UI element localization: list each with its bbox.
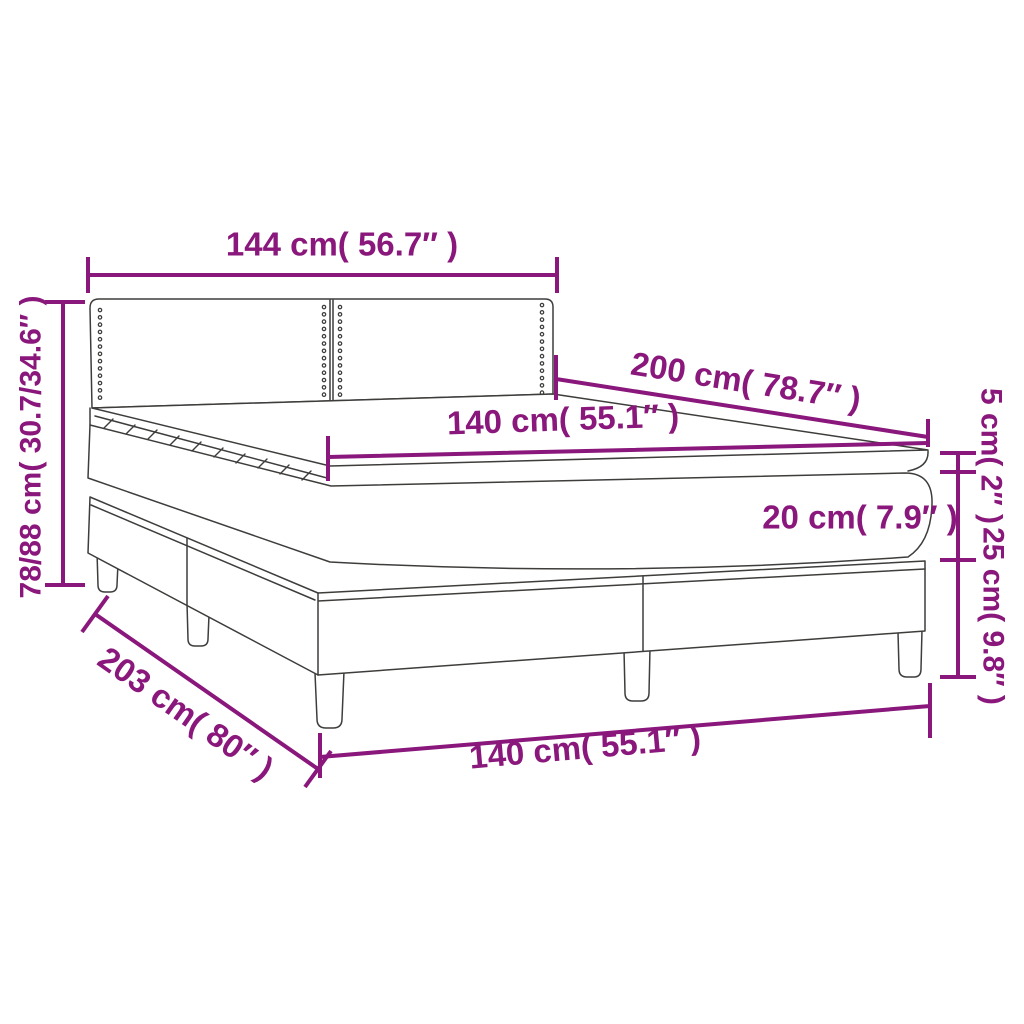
dim-line-total-height bbox=[45, 302, 85, 585]
bed-dimension-diagram-page: 144 cm( 56.7″ ) 78/88 cm( 30.7/34.6″ ) 2… bbox=[0, 0, 1024, 1024]
dim-line-right-heights bbox=[940, 453, 976, 677]
bed-leg-4 bbox=[624, 648, 650, 701]
total-length-label: 203 cm( 80″ ) bbox=[92, 639, 281, 787]
bed-leg-3 bbox=[315, 671, 344, 728]
total-height-label: 78/88 cm( 30.7/34.6″ ) bbox=[15, 296, 48, 599]
topper-height-label: 5 cm( 2″ ) bbox=[975, 388, 1008, 524]
mattress-width-front-label: 140 cm( 55.1″ ) bbox=[468, 718, 703, 775]
mattress-height-label: 20 cm( 7.9″ ) bbox=[762, 499, 958, 536]
bed-leg-5 bbox=[898, 630, 922, 677]
base-height-label: 25 cm( 9.8″ ) bbox=[977, 527, 1010, 705]
headboard bbox=[90, 299, 553, 408]
headboard-width-label: 144 cm( 56.7″ ) bbox=[226, 226, 458, 263]
bed-dimension-diagram: 144 cm( 56.7″ ) 78/88 cm( 30.7/34.6″ ) 2… bbox=[0, 0, 1024, 1024]
